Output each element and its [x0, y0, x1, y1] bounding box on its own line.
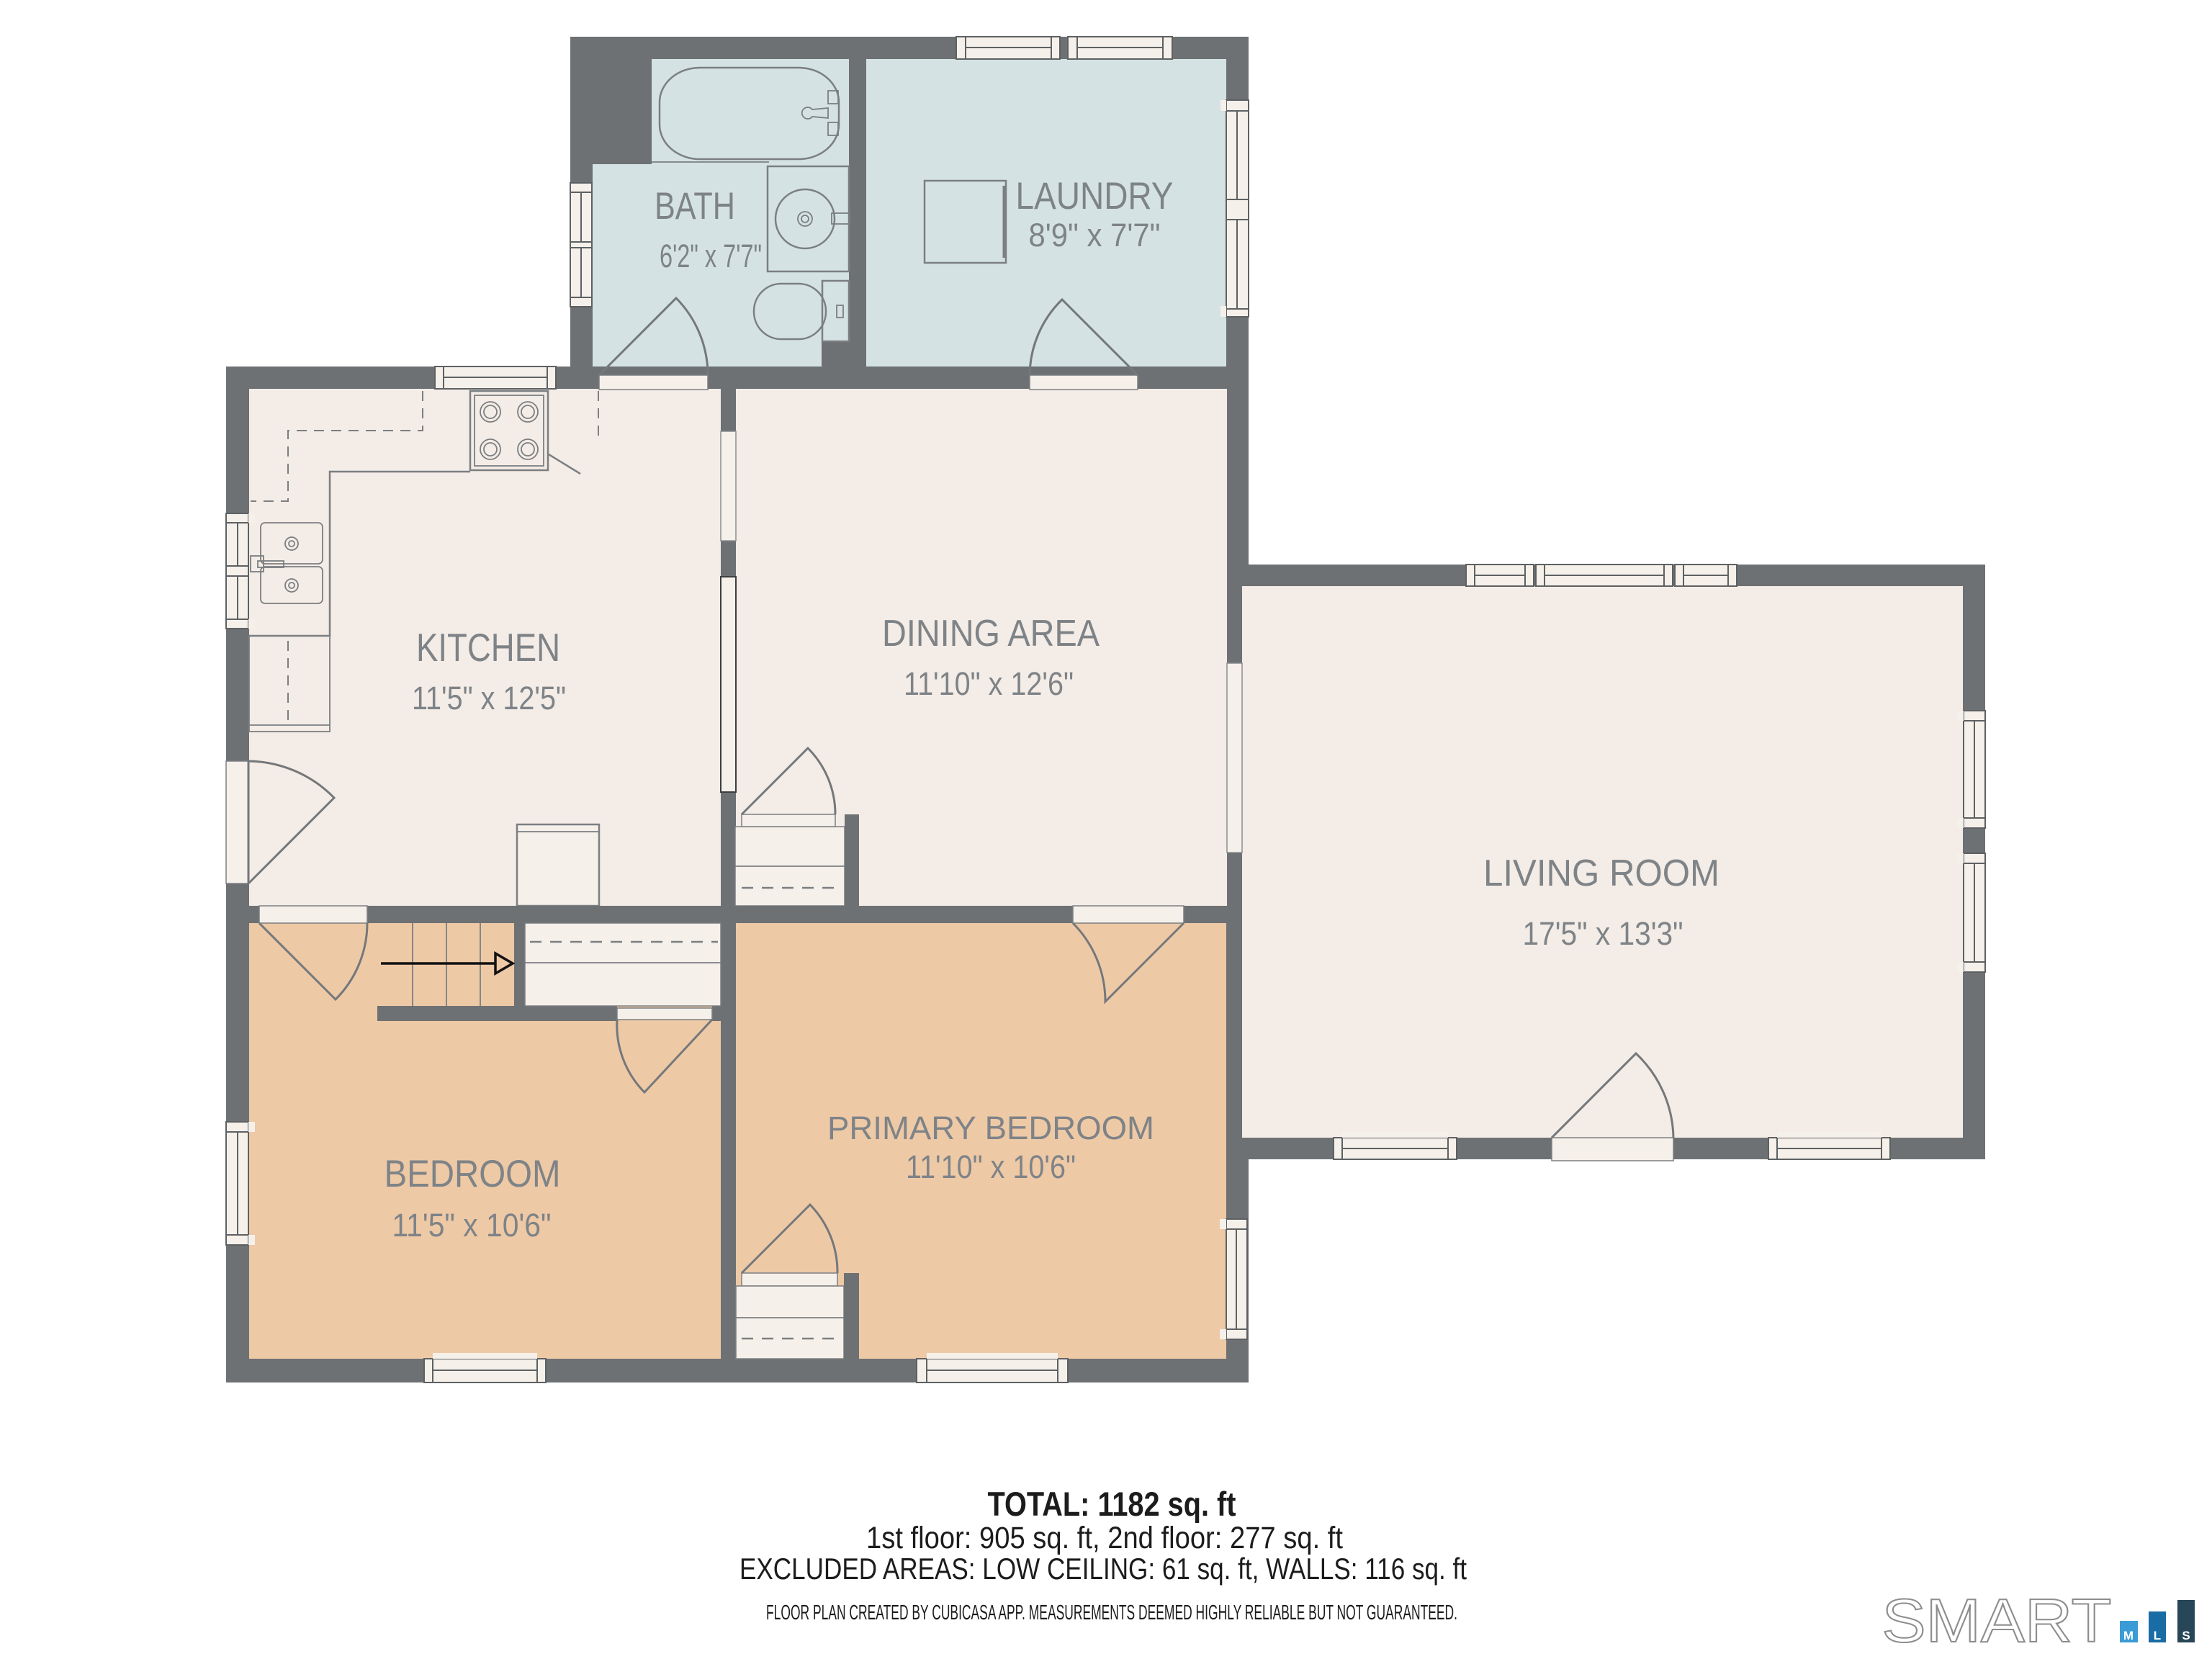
svg-text:11'10" x 12'6": 11'10" x 12'6" — [904, 665, 1074, 702]
svg-text:SMART: SMART — [1882, 1587, 2112, 1655]
svg-text:11'5" x 10'6": 11'5" x 10'6" — [392, 1207, 552, 1244]
svg-text:PRIMARY BEDROOM: PRIMARY BEDROOM — [827, 1110, 1154, 1146]
svg-text:1st floor: 905 sq. ft, 2nd flo: 1st floor: 905 sq. ft, 2nd floor: 277 sq… — [866, 1521, 1343, 1555]
svg-text:S: S — [2182, 1629, 2190, 1642]
svg-text:M: M — [2123, 1629, 2134, 1642]
svg-text:L: L — [2154, 1629, 2161, 1642]
svg-text:11'5" x 12'5": 11'5" x 12'5" — [412, 680, 566, 716]
svg-text:TOTAL: 1182 sq. ft: TOTAL: 1182 sq. ft — [988, 1485, 1236, 1523]
svg-text:FLOOR PLAN CREATED BY CUBICASA: FLOOR PLAN CREATED BY CUBICASA APP. MEAS… — [766, 1601, 1457, 1624]
svg-text:11'10" x 10'6": 11'10" x 10'6" — [906, 1148, 1076, 1185]
svg-text:BATH: BATH — [655, 185, 735, 228]
svg-text:BEDROOM: BEDROOM — [385, 1153, 561, 1195]
svg-text:LAUNDRY: LAUNDRY — [1016, 175, 1174, 217]
svg-text:KITCHEN: KITCHEN — [416, 625, 560, 670]
svg-text:LIVING ROOM: LIVING ROOM — [1483, 853, 1719, 894]
svg-text:6'2" x 7'7": 6'2" x 7'7" — [660, 238, 762, 274]
svg-text:17'5" x 13'3": 17'5" x 13'3" — [1523, 915, 1683, 952]
svg-text:DINING AREA: DINING AREA — [882, 613, 1100, 655]
svg-text:8'9" x 7'7": 8'9" x 7'7" — [1029, 217, 1161, 253]
svg-text:EXCLUDED AREAS: LOW CEILING: 6: EXCLUDED AREAS: LOW CEILING: 61 sq. ft, … — [739, 1552, 1467, 1586]
